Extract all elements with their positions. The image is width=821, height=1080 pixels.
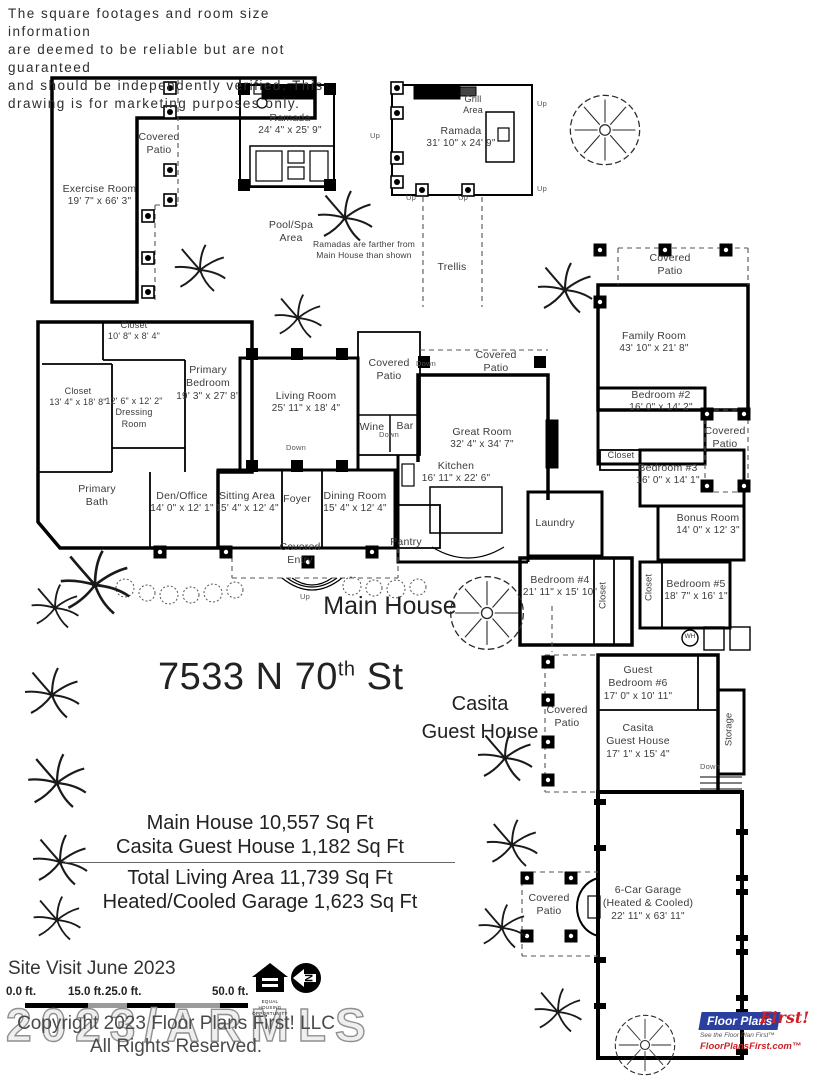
label-covered-patio-living: CoveredPatio — [360, 357, 418, 384]
disclaimer-text: The square footages and room size inform… — [8, 5, 348, 113]
label-covered-patio-bedrooms: CoveredPatio — [700, 425, 750, 452]
room-label-kitchen: Kitchen16' 11" x 22' 6" — [412, 460, 500, 486]
stair-up-label: Up — [300, 592, 310, 601]
room-label-family-room: Family Room43' 10" x 21' 8" — [600, 330, 708, 356]
label-closet-bed3: Closet — [602, 450, 640, 461]
stair-up-label: Up — [537, 99, 547, 108]
room-label-pantry: Pantry — [382, 536, 430, 549]
room-label-great-room: Great Room32' 4" x 34' 7" — [430, 426, 534, 452]
square-footage-summary: Main House 10,557 Sq Ft Casita Guest Hou… — [55, 811, 465, 914]
scale-tick-0: 0.0 ft. — [6, 986, 36, 998]
room-label-foyer: Foyer — [272, 493, 322, 506]
logo-first-script: First! — [760, 1008, 809, 1027]
equal-housing-icon — [251, 962, 289, 994]
room-label-bedroom-5: Bedroom #518' 7" x 16' 1" — [646, 578, 746, 604]
scale-tick-50: 50.0 ft. — [212, 986, 248, 998]
room-label-primary-bedroom: PrimaryBedroom 19' 3" x 27' 8" — [162, 364, 254, 404]
stair-up-label: Up — [370, 131, 380, 140]
north-arrow-icon: N — [288, 960, 324, 996]
equal-housing-logo: EQUALHOUSINGOPPORTUNITY — [250, 962, 290, 1017]
label-grill-area: GrillArea — [452, 94, 494, 117]
room-label-casita-guest-house: CasitaGuest House 17' 1" x 15' 4" — [584, 722, 692, 762]
stair-up-label: Up — [537, 184, 547, 193]
logo-tagline: See the Floor Plan First™ — [700, 1032, 815, 1039]
room-label-guest-bedroom-6: GuestBedroom #6 17' 0" x 10' 11" — [586, 664, 690, 704]
room-label-bonus-room: Bonus Room14' 0" x 12' 3" — [662, 512, 754, 538]
room-label-laundry: Laundry — [526, 517, 584, 530]
step-down-label: Down — [286, 443, 306, 452]
logo-url: FloorPlansFirst.com™ — [700, 1041, 815, 1052]
room-label-ramada-1: Ramada24' 4" x 25' 9" — [240, 112, 340, 138]
label-covered-patio-exercise: CoveredPatio — [128, 131, 190, 158]
label-trellis: Trellis — [424, 261, 480, 274]
label-covered-patio-family: CoveredPatio — [636, 252, 704, 279]
room-label-bedroom-3: Bedroom #316' 0" x 14' 1" — [616, 462, 720, 488]
label-covered-patio-garage: CoveredPatio — [524, 892, 574, 919]
casita-guest-house-title: CasitaGuest House — [406, 690, 554, 746]
label-closet-bed4: Closet — [598, 564, 609, 628]
room-label-dressing-room: 12' 6" x 12' 2"DressingRoom — [97, 396, 171, 430]
room-label-living-room: Living Room25' 11" x 18' 4" — [252, 390, 360, 416]
room-label-exercise-room: Exercise Room19' 7" x 66' 3" — [42, 183, 157, 209]
property-address: 7533 N 70th St — [158, 656, 404, 699]
label-storage: Storage — [724, 698, 735, 762]
main-house-title: Main House — [299, 592, 481, 621]
label-water-heater: WH — [682, 633, 698, 640]
label-ramada-note: Ramadas are farther fromMain House than … — [298, 239, 430, 261]
room-label-ramada-2: Ramada31' 10" x 24' 9" — [405, 125, 517, 151]
stair-up-label: Up — [406, 193, 416, 202]
scale-tick-15: 15.0 ft. — [68, 986, 104, 998]
stair-up-label: Up — [458, 193, 468, 202]
site-visit-date: Site Visit June 2023 — [8, 958, 176, 980]
room-label-bedroom-2: Bedroom #216' 0" x 14' 2" — [610, 389, 712, 415]
step-down-label: Down — [379, 430, 399, 439]
floorplans-first-logo: Floor Plans First! See the Floor Plan Fi… — [700, 1012, 815, 1052]
scale-tick-25: 25.0 ft. — [105, 986, 141, 998]
room-label-dining-room: Dining Room15' 4" x 12' 4" — [318, 490, 392, 516]
room-label-primary-bath: PrimaryBath — [66, 483, 128, 510]
label-covered-entry: CoveredEntry — [260, 541, 340, 568]
room-label-garage: 6-Car Garage(Heated & Cooled) 22' 11" x … — [580, 884, 716, 924]
step-down-label: Down — [416, 359, 436, 368]
svg-text:N: N — [302, 974, 314, 982]
label-covered-patio-great: CoveredPatio — [464, 349, 528, 376]
step-down-label: Down — [700, 762, 720, 771]
room-label-closet-a: Closet10' 8" x 8' 4" — [102, 320, 166, 343]
summary-divider — [65, 862, 455, 863]
floorplan-page: The square footages and room size inform… — [0, 0, 821, 1080]
room-label-den-office: Den/Office14' 0" x 12' 1" — [146, 490, 218, 516]
copyright-text: Copyright 2023 Floor Plans First! LLC Al… — [2, 1013, 350, 1059]
